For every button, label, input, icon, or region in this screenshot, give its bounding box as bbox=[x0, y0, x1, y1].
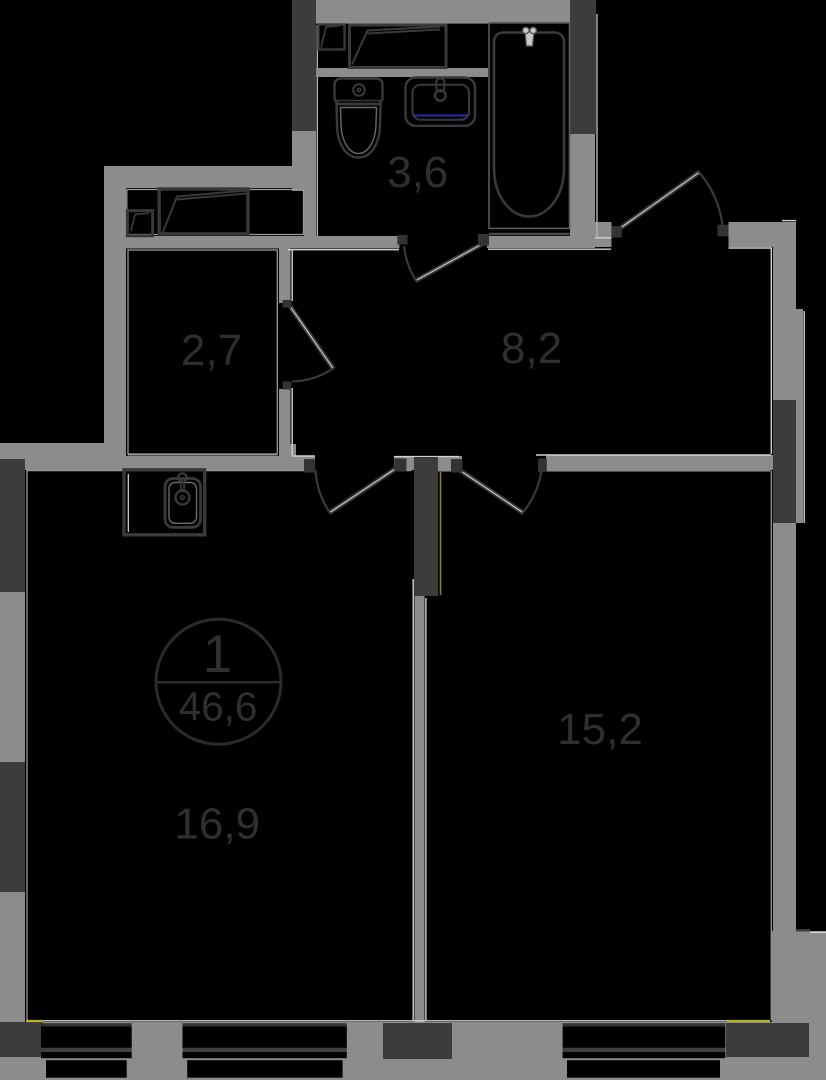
svg-text:3,6: 3,6 bbox=[387, 148, 448, 197]
svg-text:16,9: 16,9 bbox=[174, 799, 260, 848]
svg-text:8,2: 8,2 bbox=[501, 324, 562, 373]
svg-text:15,2: 15,2 bbox=[557, 705, 643, 754]
svg-text:46,6: 46,6 bbox=[179, 684, 258, 730]
svg-text:1: 1 bbox=[203, 625, 232, 684]
svg-text:2,7: 2,7 bbox=[181, 326, 242, 375]
